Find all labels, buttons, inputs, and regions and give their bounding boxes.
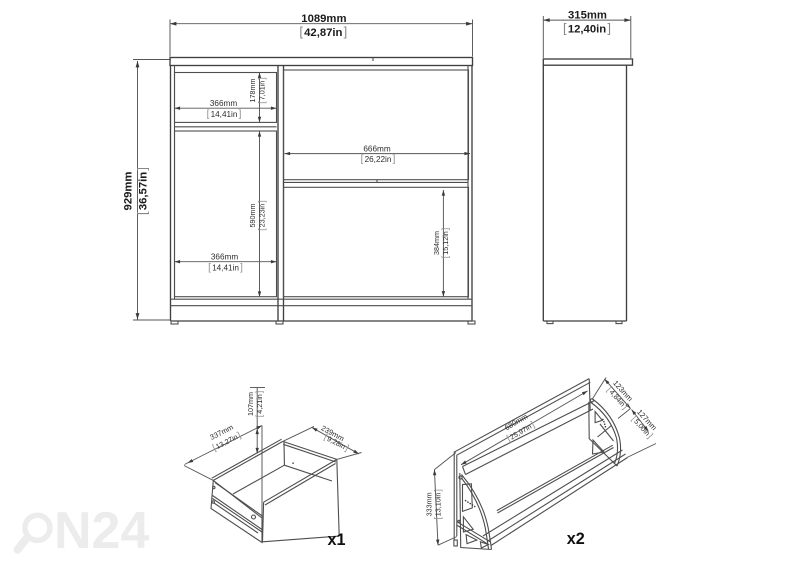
svg-text:[4,21in]: [4,21in] bbox=[254, 391, 264, 418]
svg-text:[13,10in]: [13,10in] bbox=[433, 489, 443, 520]
svg-text:107mm: 107mm bbox=[246, 392, 255, 416]
svg-text:[23,23in]: [23,23in] bbox=[256, 200, 266, 231]
svg-text:333mm: 333mm bbox=[424, 492, 433, 516]
svg-text:590mm: 590mm bbox=[248, 204, 257, 228]
svg-text:x2: x2 bbox=[567, 530, 585, 548]
svg-text:[7,01in]: [7,01in] bbox=[256, 77, 266, 104]
svg-text:[14,41in]: [14,41in] bbox=[208, 262, 243, 273]
svg-text:[26,22in]: [26,22in] bbox=[361, 154, 396, 165]
svg-text:[15,12in]: [15,12in] bbox=[440, 228, 450, 259]
svg-text:1089mm: 1089mm bbox=[301, 13, 346, 25]
svg-text:N24: N24 bbox=[54, 502, 149, 560]
svg-text:929mm: 929mm bbox=[123, 172, 135, 211]
svg-text:[14,41in]: [14,41in] bbox=[207, 109, 242, 120]
svg-text:x1: x1 bbox=[328, 531, 346, 549]
svg-text:[36,57in]: [36,57in] bbox=[135, 167, 150, 215]
svg-text:[42,87in]: [42,87in] bbox=[299, 24, 347, 39]
svg-text:366mm: 366mm bbox=[210, 99, 237, 108]
svg-text:[12,40in]: [12,40in] bbox=[563, 21, 611, 36]
svg-text:384mm: 384mm bbox=[432, 231, 441, 255]
svg-text:178mm: 178mm bbox=[248, 79, 257, 103]
svg-text:666mm: 666mm bbox=[363, 145, 390, 154]
svg-text:315mm: 315mm bbox=[568, 9, 607, 21]
svg-text:366mm: 366mm bbox=[211, 253, 238, 262]
